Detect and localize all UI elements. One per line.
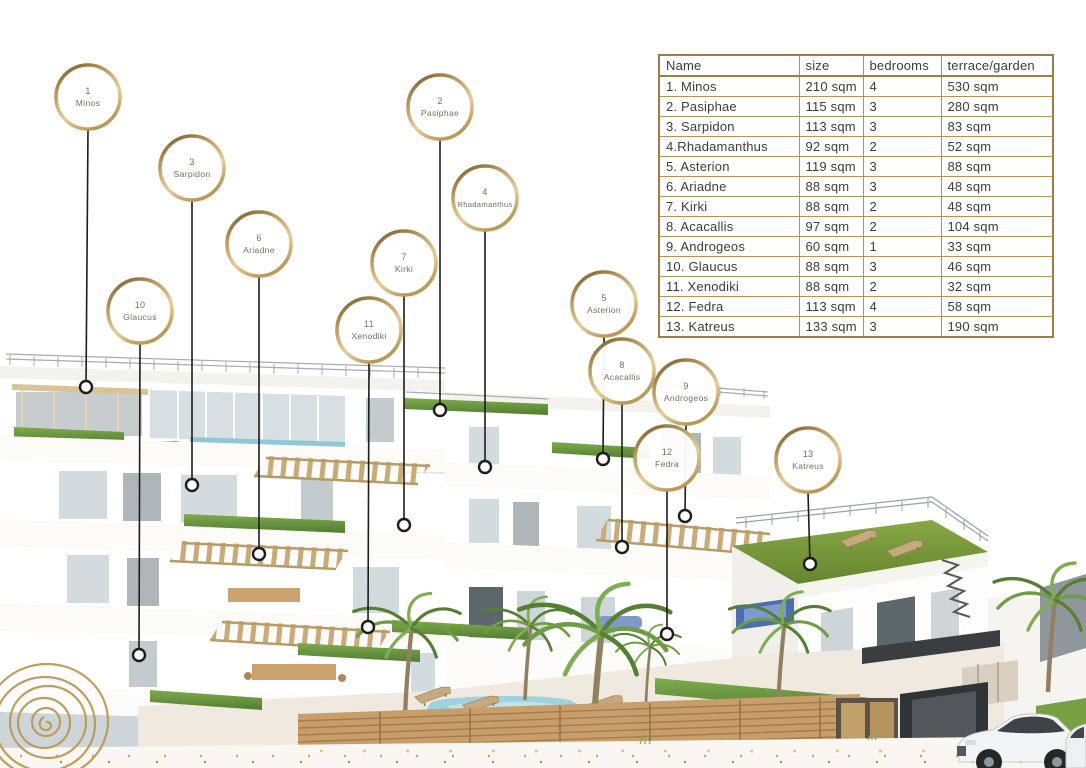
marker-endpoint-ring: [679, 510, 691, 522]
cell-terrace: 48 sqm: [941, 177, 1053, 197]
table-row: 12. Fedra113 sqm458 sqm: [659, 297, 1053, 317]
marker-endpoint-ring: [253, 548, 265, 560]
cell-bedrooms: 3: [863, 177, 941, 197]
cell-name: 13. Katreus: [659, 317, 799, 338]
cell-terrace: 530 sqm: [941, 76, 1053, 97]
cell-bedrooms: 2: [863, 137, 941, 157]
table-row: 10. Glaucus88 sqm346 sqm: [659, 257, 1053, 277]
marker-name: Rhadamanthus: [457, 200, 512, 209]
marker-number: 5: [601, 293, 606, 303]
marker-endpoint-ring: [597, 453, 609, 465]
table-row: 9. Androgeos60 sqm133 sqm: [659, 237, 1053, 257]
cell-size: 115 sqm: [799, 97, 863, 117]
marker-name: Fedra: [655, 459, 679, 469]
cell-name: 6. Ariadne: [659, 177, 799, 197]
cell-name: 11. Xenodiki: [659, 277, 799, 297]
table-row: 11. Xenodiki88 sqm232 sqm: [659, 277, 1053, 297]
cell-name: 9. Androgeos: [659, 237, 799, 257]
cell-size: 113 sqm: [799, 297, 863, 317]
cell-name: 4.Rhadamanthus: [659, 137, 799, 157]
table-row: 6. Ariadne88 sqm348 sqm: [659, 177, 1053, 197]
marker-number: 6: [256, 233, 261, 243]
marker-endpoint-ring: [133, 649, 145, 661]
marker-name: Katreus: [792, 461, 824, 471]
marker-number: 8: [619, 360, 624, 370]
cell-name: 8. Acacallis: [659, 217, 799, 237]
cell-name: 3. Sarpidon: [659, 117, 799, 137]
marker-circle: [654, 360, 718, 424]
col-header-bedrooms: bedrooms: [863, 55, 941, 76]
cell-name: 7. Kirki: [659, 197, 799, 217]
cell-terrace: 33 sqm: [941, 237, 1053, 257]
marker-circle: [408, 75, 472, 139]
marker-circle: [590, 339, 654, 403]
cell-terrace: 46 sqm: [941, 257, 1053, 277]
marker-number: 11: [364, 319, 374, 329]
cell-terrace: 32 sqm: [941, 277, 1053, 297]
cell-size: 133 sqm: [799, 317, 863, 338]
cell-size: 88 sqm: [799, 277, 863, 297]
marker-name: Minos: [76, 98, 100, 108]
table-row: 8. Acacallis97 sqm2104 sqm: [659, 217, 1053, 237]
table-row: 2. Pasiphae115 sqm3280 sqm: [659, 97, 1053, 117]
marker-circle: [776, 428, 840, 492]
marker-circle: [635, 426, 699, 490]
marker-leader-line: [808, 492, 810, 564]
cell-bedrooms: 3: [863, 317, 941, 338]
marker-name: Sarpidon: [174, 169, 211, 179]
cell-size: 113 sqm: [799, 117, 863, 137]
col-header-name: Name: [659, 55, 799, 76]
marker-name: Kirki: [395, 264, 413, 274]
cell-size: 60 sqm: [799, 237, 863, 257]
table-row: 7. Kirki88 sqm248 sqm: [659, 197, 1053, 217]
cell-bedrooms: 1: [863, 237, 941, 257]
cell-size: 92 sqm: [799, 137, 863, 157]
unit-marker-rhadamanthus: 4Rhadamanthus: [453, 166, 517, 473]
cell-bedrooms: 3: [863, 97, 941, 117]
unit-spec-table: Name size bedrooms terrace/garden 1. Min…: [658, 54, 1054, 338]
col-header-size: size: [799, 55, 863, 76]
col-header-terrace: terrace/garden: [941, 55, 1053, 76]
marker-circle: [572, 272, 636, 336]
cell-size: 88 sqm: [799, 257, 863, 277]
marker-endpoint-ring: [362, 621, 374, 633]
table-row: 13. Katreus133 sqm3190 sqm: [659, 317, 1053, 338]
unit-marker-ariadne: 6Ariadne: [227, 212, 291, 560]
brochure-page: 1Minos2Pasiphae3Sarpidon4Rhadamanthus5As…: [0, 0, 1086, 768]
cell-terrace: 104 sqm: [941, 217, 1053, 237]
cell-size: 210 sqm: [799, 76, 863, 97]
marker-endpoint-ring: [434, 404, 446, 416]
table-header-row: Name size bedrooms terrace/garden: [659, 55, 1053, 76]
cell-name: 12. Fedra: [659, 297, 799, 317]
marker-name: Ariadne: [243, 245, 275, 255]
marker-number: 1: [85, 86, 90, 96]
marker-leader-line: [86, 129, 88, 387]
unit-marker-kirki: 7Kirki: [372, 231, 436, 531]
marker-circle: [372, 231, 436, 295]
marker-number: 4: [482, 187, 487, 197]
marker-circle: [453, 166, 517, 230]
cell-bedrooms: 3: [863, 257, 941, 277]
cell-bedrooms: 2: [863, 197, 941, 217]
marker-number: 12: [662, 447, 673, 457]
marker-number: 9: [683, 381, 688, 391]
marker-number: 7: [401, 252, 406, 262]
cell-name: 10. Glaucus: [659, 257, 799, 277]
marker-name: Acacallis: [604, 372, 641, 382]
cell-name: 1. Minos: [659, 76, 799, 97]
marker-number: 3: [189, 157, 194, 167]
marker-number: 2: [437, 96, 442, 106]
marker-endpoint-ring: [479, 461, 491, 473]
cell-terrace: 280 sqm: [941, 97, 1053, 117]
marker-circle: [108, 279, 172, 343]
cell-terrace: 52 sqm: [941, 137, 1053, 157]
cell-bedrooms: 4: [863, 297, 941, 317]
cell-terrace: 88 sqm: [941, 157, 1053, 177]
marker-name: Pasiphae: [421, 108, 459, 118]
cell-bedrooms: 3: [863, 157, 941, 177]
unit-marker-fedra: 12Fedra: [635, 426, 699, 640]
table-row: 5. Asterion119 sqm388 sqm: [659, 157, 1053, 177]
marker-circle: [160, 136, 224, 200]
marker-name: Asterion: [587, 305, 621, 315]
marker-endpoint-ring: [186, 479, 198, 491]
cell-bedrooms: 4: [863, 76, 941, 97]
cell-terrace: 58 sqm: [941, 297, 1053, 317]
marker-endpoint-ring: [804, 558, 816, 570]
unit-marker-glaucus: 10Glaucus: [108, 279, 172, 661]
marker-endpoint-ring: [398, 519, 410, 531]
cell-bedrooms: 2: [863, 277, 941, 297]
cell-size: 119 sqm: [799, 157, 863, 177]
table-row: 3. Sarpidon113 sqm383 sqm: [659, 117, 1053, 137]
cell-size: 88 sqm: [799, 197, 863, 217]
marker-endpoint-ring: [80, 381, 92, 393]
marker-number: 10: [135, 300, 146, 310]
marker-endpoint-ring: [616, 541, 628, 553]
marker-name: Xenodiki: [351, 331, 386, 341]
marker-leader-line: [139, 343, 140, 655]
cell-terrace: 48 sqm: [941, 197, 1053, 217]
marker-name: Androgeos: [664, 393, 708, 403]
table-row: 1. Minos210 sqm4530 sqm: [659, 76, 1053, 97]
marker-endpoint-ring: [661, 628, 673, 640]
cell-size: 97 sqm: [799, 217, 863, 237]
cell-bedrooms: 2: [863, 217, 941, 237]
table-row: 4.Rhadamanthus92 sqm252 sqm: [659, 137, 1053, 157]
marker-number: 13: [803, 449, 814, 459]
cell-terrace: 83 sqm: [941, 117, 1053, 137]
unit-marker-minos: 1Minos: [56, 65, 120, 393]
cell-name: 5. Asterion: [659, 157, 799, 177]
cell-terrace: 190 sqm: [941, 317, 1053, 338]
cell-name: 2. Pasiphae: [659, 97, 799, 117]
marker-circle: [56, 65, 120, 129]
marker-circle: [227, 212, 291, 276]
cell-size: 88 sqm: [799, 177, 863, 197]
marker-leader-line: [368, 362, 369, 627]
cell-bedrooms: 3: [863, 117, 941, 137]
unit-marker-katreus: 13Katreus: [776, 428, 840, 570]
marker-circle: [337, 298, 401, 362]
marker-name: Glaucus: [123, 312, 157, 322]
unit-marker-xenodiki: 11Xenodiki: [337, 298, 401, 633]
